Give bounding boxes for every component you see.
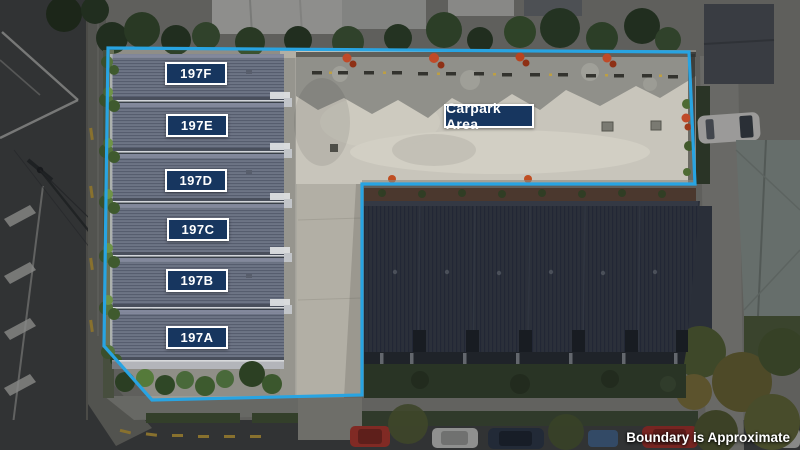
unit-label-197e: 197E [166,114,228,137]
disclaimer-text: Boundary is Approximate [626,430,790,445]
unit-label-197b: 197B [166,269,228,292]
unit-label-197c: 197C [167,218,229,241]
unit-label-197d: 197D [165,169,227,192]
drain-cover [602,122,613,131]
carpark-area-label: Carpark Area [444,104,534,128]
unit-label-197a: 197A [166,326,228,349]
aerial-scene [0,0,800,450]
unit-label-197f: 197F [165,62,227,85]
property-aerial-photo: 197F 197E 197D 197C 197B 197A Carpark Ar… [0,0,800,450]
drain-cover [651,121,661,130]
